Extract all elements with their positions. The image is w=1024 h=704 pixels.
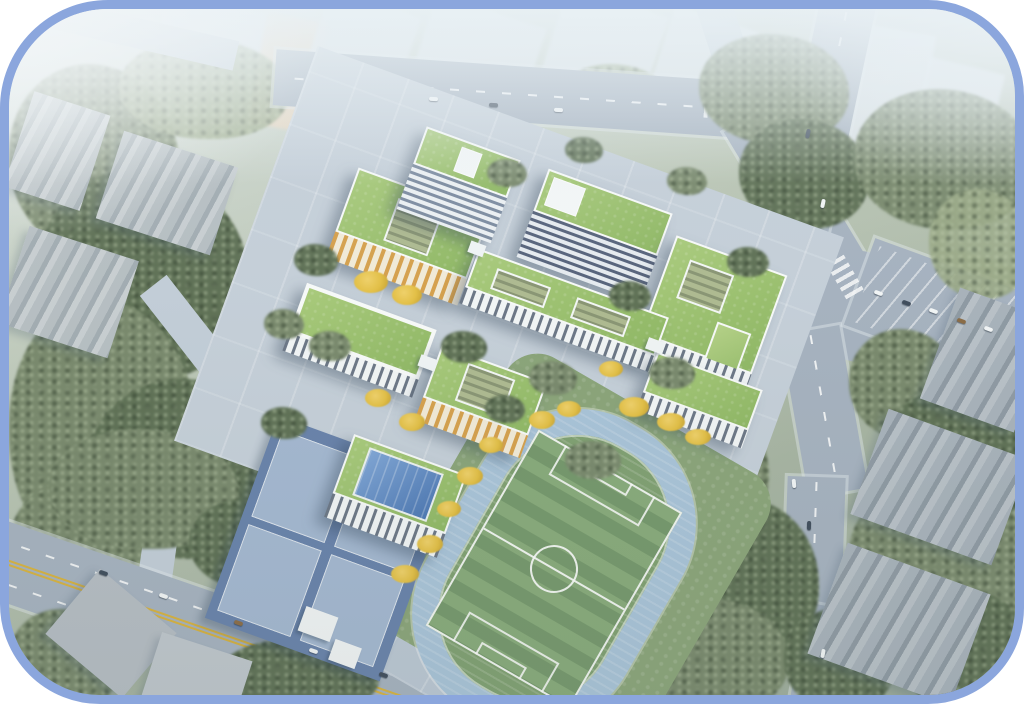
ginkgo-tree	[392, 285, 422, 305]
tree	[667, 167, 707, 195]
car	[429, 97, 438, 102]
tree	[727, 247, 769, 277]
lane-dashes	[810, 335, 839, 488]
ginkgo-tree	[657, 413, 685, 431]
tree	[264, 309, 304, 339]
trees	[929, 189, 1024, 299]
ginkgo-tree	[437, 501, 461, 517]
ginkgo-tree	[457, 467, 483, 485]
aerial-rendering-frame	[0, 0, 1024, 704]
tree	[649, 357, 695, 389]
tree	[565, 137, 603, 163]
ginkgo-tree	[399, 413, 425, 431]
ginkgo-tree	[417, 535, 443, 553]
ginkgo-tree	[479, 437, 503, 453]
tree	[609, 281, 651, 311]
car	[807, 521, 811, 530]
ginkgo-tree	[391, 565, 419, 583]
ginkgo-tree	[599, 361, 623, 377]
ginkgo-tree	[354, 271, 388, 293]
car	[489, 103, 498, 108]
ginkgo-tree	[619, 397, 649, 417]
ginkgo-tree	[685, 429, 711, 445]
tree	[294, 244, 338, 276]
ginkgo-tree	[529, 411, 555, 429]
tree	[529, 361, 577, 395]
tree	[565, 441, 621, 479]
tree	[441, 331, 487, 363]
ginkgo-tree	[557, 401, 581, 417]
swimming-pool-hall	[324, 434, 467, 558]
car	[792, 479, 797, 488]
car	[554, 108, 563, 113]
tree	[261, 407, 307, 439]
tree	[487, 159, 527, 187]
ginkgo-tree	[365, 389, 391, 407]
tree	[309, 331, 351, 361]
tree	[485, 395, 525, 423]
